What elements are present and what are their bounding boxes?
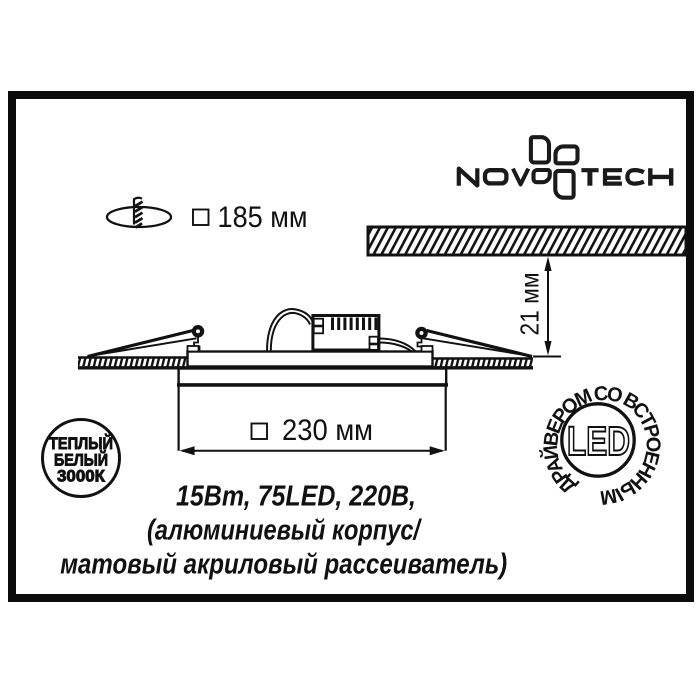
svg-text:21 мм: 21 мм bbox=[515, 273, 545, 336]
svg-text:LED: LED bbox=[567, 418, 630, 464]
svg-text:185 мм: 185 мм bbox=[218, 201, 308, 234]
svg-text:3000К: 3000К bbox=[57, 468, 106, 486]
svg-text:15Вт, 75LED, 220В,: 15Вт, 75LED, 220В, bbox=[176, 481, 416, 513]
svg-text:ТЕПЛЫЙ: ТЕПЛЫЙ bbox=[49, 434, 113, 453]
svg-text:(алюминиевый корпус/: (алюминиевый корпус/ bbox=[147, 515, 422, 547]
svg-text:матовый акриловый рассеиватель: матовый акриловый рассеиватель) bbox=[60, 549, 507, 581]
svg-text:230 мм: 230 мм bbox=[282, 414, 373, 447]
